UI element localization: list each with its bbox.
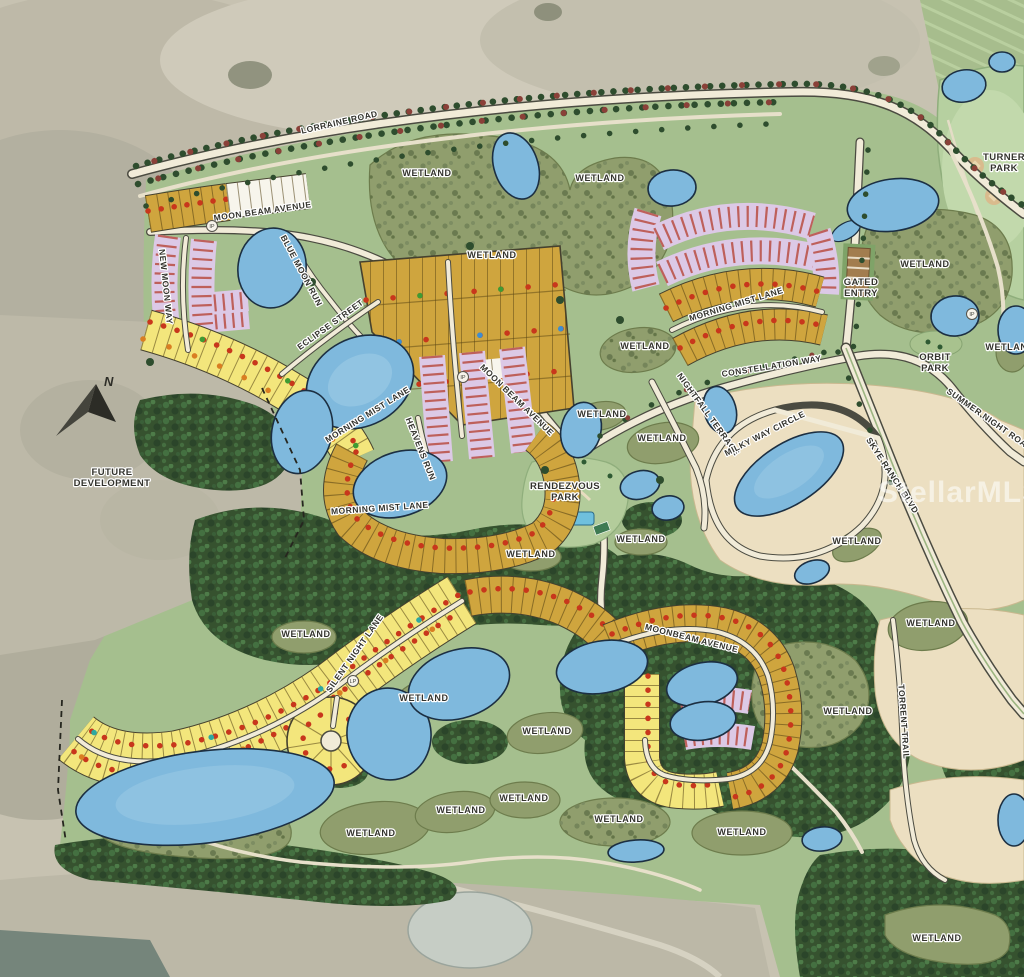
wetland-label: WETLAND xyxy=(620,341,669,351)
utility-marker-label: IP xyxy=(209,224,215,230)
stellar-mls-watermark: StellarMLS xyxy=(878,476,1024,509)
wetland-label: WETLAND xyxy=(832,536,881,546)
wetland-label: WETLAND xyxy=(402,168,451,178)
utility-marker-label: IP xyxy=(969,312,975,318)
wetland-label: WETLAND xyxy=(436,805,485,815)
place-label: ORBITPARK xyxy=(919,352,951,374)
wetland-label: WETLAND xyxy=(616,534,665,544)
north-label: N xyxy=(104,374,114,389)
utility-marker-label: IP xyxy=(460,375,466,381)
site-plan-map: N LORRAINE ROADMOON BEAM AVENUENEW MOON … xyxy=(0,0,1024,977)
wetland-label: WETLAND xyxy=(912,933,961,943)
site-plan-svg: N LORRAINE ROADMOON BEAM AVENUENEW MOON … xyxy=(0,0,1024,977)
wetland-label: WETLAND xyxy=(906,618,955,628)
place-label: GATEDENTRY xyxy=(844,277,879,299)
utility-marker-label: LP xyxy=(350,679,357,685)
wetland-label: WETLAND xyxy=(717,827,766,837)
wetland-label: WETLAND xyxy=(577,409,626,419)
wetland-label: WETLAND xyxy=(575,173,624,183)
wetland-label: WETLAND xyxy=(900,259,949,269)
wetland-label: WETLAND xyxy=(346,828,395,838)
wetland-label: WETLAND xyxy=(467,250,516,260)
wetland-label: WETLAND xyxy=(499,793,548,803)
wetland-label: WETLAND xyxy=(522,726,571,736)
wetland-label: WETLAND xyxy=(506,549,555,559)
wetland-label: WETLAND xyxy=(594,814,643,824)
wetland-label: WETLAND xyxy=(637,433,686,443)
place-label: TURNERPARK xyxy=(983,152,1024,174)
wetland-label: WETLAND xyxy=(823,706,872,716)
wetland-label: WETLAND xyxy=(281,629,330,639)
wetland-label: WETLAND xyxy=(985,342,1024,352)
wetland-label: WETLAND xyxy=(399,693,448,703)
